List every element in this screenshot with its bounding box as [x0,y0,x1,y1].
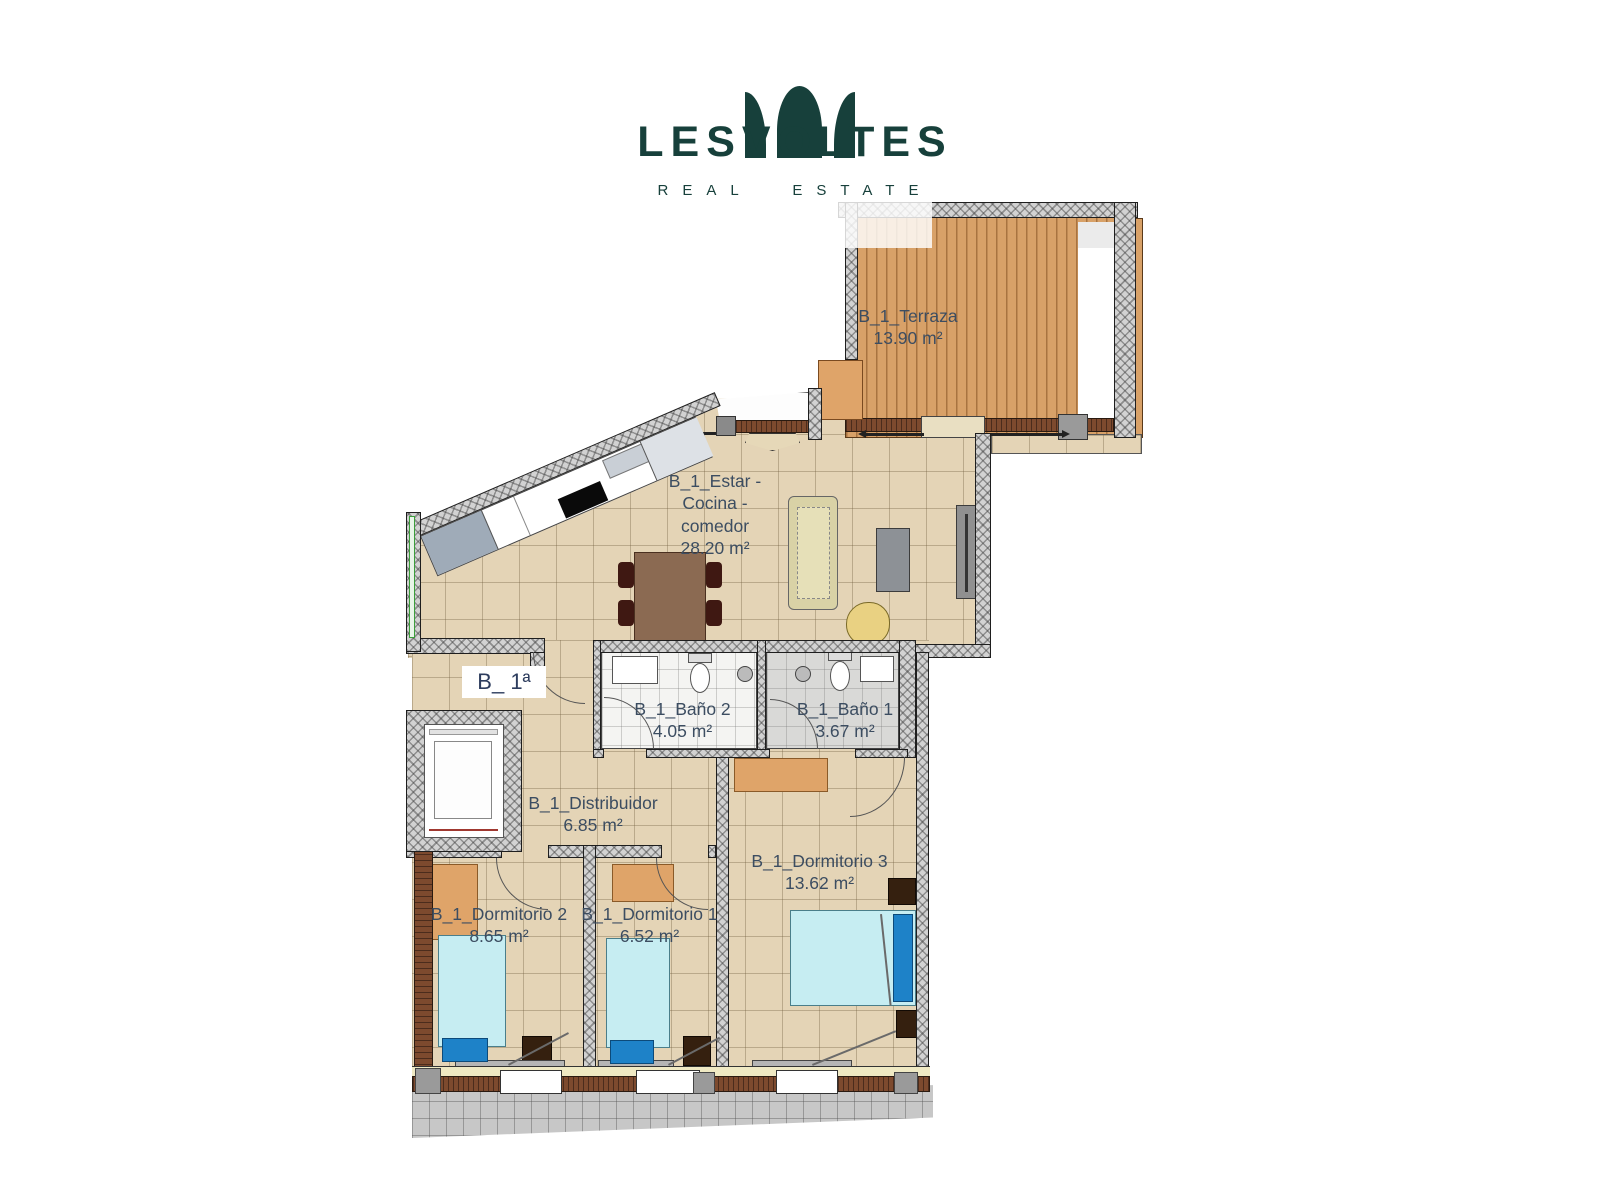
wall-right-outer [916,652,929,1076]
logo-overlay [832,196,932,248]
bath1-shower-head-icon [795,666,811,682]
wall-bath-divider [757,640,766,758]
wall-terrace-right [1114,202,1136,438]
room-area: 28.20 m² [630,537,800,559]
dining-chair [706,562,722,588]
elevator-door-line [429,729,498,735]
facade-window [500,1070,562,1094]
room-label-dormitorio2: B_1_Dormitorio 2 8.65 m² [424,903,574,948]
brand-logo: LESVOLTES REAL ESTATE [630,40,960,210]
room-name: B_1_Terraza [828,305,988,327]
sliding-arrow-right-icon [1062,430,1070,438]
bath2-toilet-tank [688,653,712,663]
room-name: B_1_Dormitorio 2 [424,903,574,925]
room-area: 3.67 m² [775,720,915,742]
dining-chair [706,600,722,626]
facade-post [693,1072,715,1094]
pillow-dorm3 [893,914,913,1002]
wall-bedrooms-top-b [548,845,662,858]
room-label-distribuidor: B_1_Distribuidor 6.85 m² [518,792,668,837]
room-label-dormitorio3: B_1_Dormitorio 3 13.62 m² [742,850,897,895]
wall-bedrooms-top-c [708,845,716,858]
dining-table [634,552,706,648]
front-pillar [716,416,736,436]
facade-window [776,1070,838,1094]
terrace-cabinet [818,360,863,420]
bath2-sink [612,656,658,684]
nightstand-dorm3-bottom [896,1010,918,1038]
wall-bath-bottom-a [593,749,604,758]
room-area: 6.52 m² [572,925,727,947]
pillow-dorm2 [442,1038,488,1062]
bed-dorm1 [606,938,670,1048]
kitchen-divider [513,496,531,535]
room-name: B_1_Baño 1 [775,698,915,720]
sliding-track-right [984,433,1062,436]
facade-post [894,1072,918,1094]
room-area: 4.05 m² [610,720,755,742]
sliding-arrow-left-icon [858,430,866,438]
room-label-terraza: B_1_Terraza 13.90 m² [828,305,988,350]
sofa-seat [797,507,830,599]
glazing-green [409,516,415,638]
facade-post [415,1068,441,1094]
room-label-bano1: B_1_Baño 1 3.67 m² [775,698,915,743]
wall-stub-front [808,388,822,440]
wardrobe-dorm3 [734,758,828,792]
pillow-dorm1 [610,1040,654,1064]
room-label-estar: B_1_Estar - Cocina - comedor 28.20 m² [630,470,800,560]
unit-label: B_ 1ª [462,666,546,698]
bath1-sink [860,656,894,682]
room-name: B_1_Baño 2 [610,698,755,720]
nightstand-dorm1 [683,1036,711,1066]
wall-hall-top [406,638,545,654]
wall-dorm2-dorm1 [583,845,596,1070]
wall-bath-left [593,640,601,758]
room-area: 8.65 m² [424,925,574,947]
room-label-bano2: B_1_Baño 2 4.05 m² [610,698,755,743]
room-name: Cocina - [630,492,800,514]
room-area: 13.62 m² [742,872,897,894]
brand-name: LESVOLTES [630,118,960,167]
room-name: B_1_Estar - [630,470,800,492]
coffee-table [876,528,910,592]
tv-screen [965,514,968,592]
room-area: 13.90 m² [828,327,988,349]
terrace-open-strip [1078,222,1114,418]
room-name: B_1_Distribuidor [518,792,668,814]
room-label-dormitorio1: B_1_Dormitorio 1 6.52 m² [572,903,727,948]
elevator-car [434,741,492,819]
unit-label-text: B_ 1ª [477,669,530,694]
dining-chair [618,562,634,588]
bath2-shower-head-icon [737,666,753,682]
wall-bath-bottom-b [646,749,770,758]
bath2-toilet [690,663,710,693]
room-name: B_1_Dormitorio 1 [572,903,727,925]
bath1-toilet [830,661,850,691]
sliding-track-left [866,433,924,436]
terrace-open-strip-top [1078,222,1114,248]
elevator-red-line [429,829,498,831]
wall-bath-top [593,640,908,653]
room-name: B_1_Dormitorio 3 [742,850,897,872]
room-area: 6.85 m² [518,814,668,836]
elevator-cabin [424,724,504,838]
bed-dorm2 [438,935,506,1047]
floor-plan-page: LESVOLTES REAL ESTATE [0,0,1600,1200]
facade-window [636,1070,700,1094]
room-name: comedor [630,515,800,537]
wall-dorm2-left-brick [414,850,433,1072]
wall-living-right [975,433,991,658]
dining-chair [618,600,634,626]
